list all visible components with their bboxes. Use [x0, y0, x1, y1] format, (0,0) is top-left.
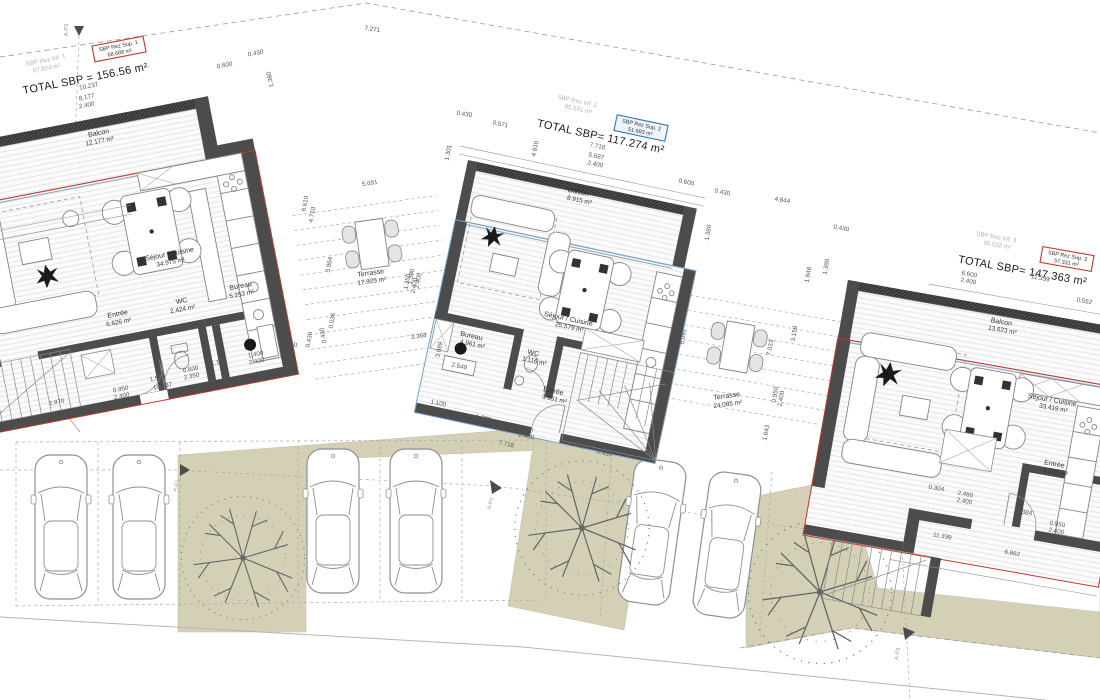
- dimension-label: 0.430: [833, 224, 850, 234]
- dimension-label: 0.571: [492, 119, 509, 129]
- dimension-label: 0.430: [318, 326, 328, 343]
- car-top-view: [109, 455, 169, 599]
- dimension-label: 0.552: [1076, 297, 1093, 307]
- dimension-label: 5.691: [361, 179, 378, 188]
- dimension-label: 4.710: [308, 206, 318, 223]
- dimension-label: 0.600: [678, 177, 695, 187]
- dimension-label: 4.844: [774, 196, 791, 206]
- dimension-label: 1.380: [265, 70, 275, 87]
- villa-2-plan: [405, 146, 712, 463]
- car-top-view: [303, 449, 363, 593]
- dimension-label: 1.380: [822, 258, 832, 275]
- car-top-view: [386, 449, 446, 593]
- cars: [31, 449, 767, 620]
- dimension-label: 2.400: [777, 390, 787, 407]
- dimension-label: 0.536: [328, 312, 338, 329]
- floor-plan-canvas: SBP Rez Inf. 1 87.874 m² SBP Rez Sup. 1 …: [0, 0, 1100, 700]
- section-marker-label: A-P2: [487, 497, 496, 510]
- dimension-label: 1.643: [762, 424, 772, 441]
- dimension-label: 7.033: [766, 339, 776, 356]
- section-marker-label: A-P3: [894, 647, 902, 660]
- dimension-label: 0.430: [305, 331, 315, 348]
- terrace-table-2: [705, 319, 768, 376]
- lawn-patch-left: [178, 428, 544, 632]
- dimension-label: 3.368: [410, 332, 427, 341]
- villa-1-plan: [0, 89, 299, 448]
- dimension-label: 2.400: [960, 277, 977, 287]
- dimension-label: 0.430: [714, 187, 731, 197]
- dimension-label: 0.600: [216, 60, 233, 70]
- terrace-table-1: [341, 216, 403, 271]
- dimension-label: 3.159: [790, 325, 800, 342]
- dimension-label: 0.430: [247, 48, 264, 58]
- dimension-label: 4.810: [530, 140, 540, 157]
- section-marker-label: A-P3: [64, 24, 70, 36]
- road-edge: [523, 647, 1045, 700]
- dimension-label: 1.380: [704, 224, 714, 241]
- dimension-label: 1.301: [443, 144, 453, 161]
- dimension-label: 1.846: [804, 266, 814, 283]
- dimension-label: 8.092: [679, 328, 689, 345]
- dimension-label: 7.271: [364, 25, 381, 34]
- section-marker-icon: [490, 480, 502, 494]
- site-plan-drawing: SBP Rez Inf. 1 87.874 m² SBP Rez Sup. 1 …: [0, 0, 1100, 700]
- villa-3-labels: SBP Rez Inf. 3 90.032 m² SBP Rez Sup. 3 …: [957, 231, 1094, 289]
- dimension-label: 0.430: [456, 110, 473, 119]
- section-marker-icon: [74, 26, 84, 36]
- car-top-view: [31, 455, 91, 599]
